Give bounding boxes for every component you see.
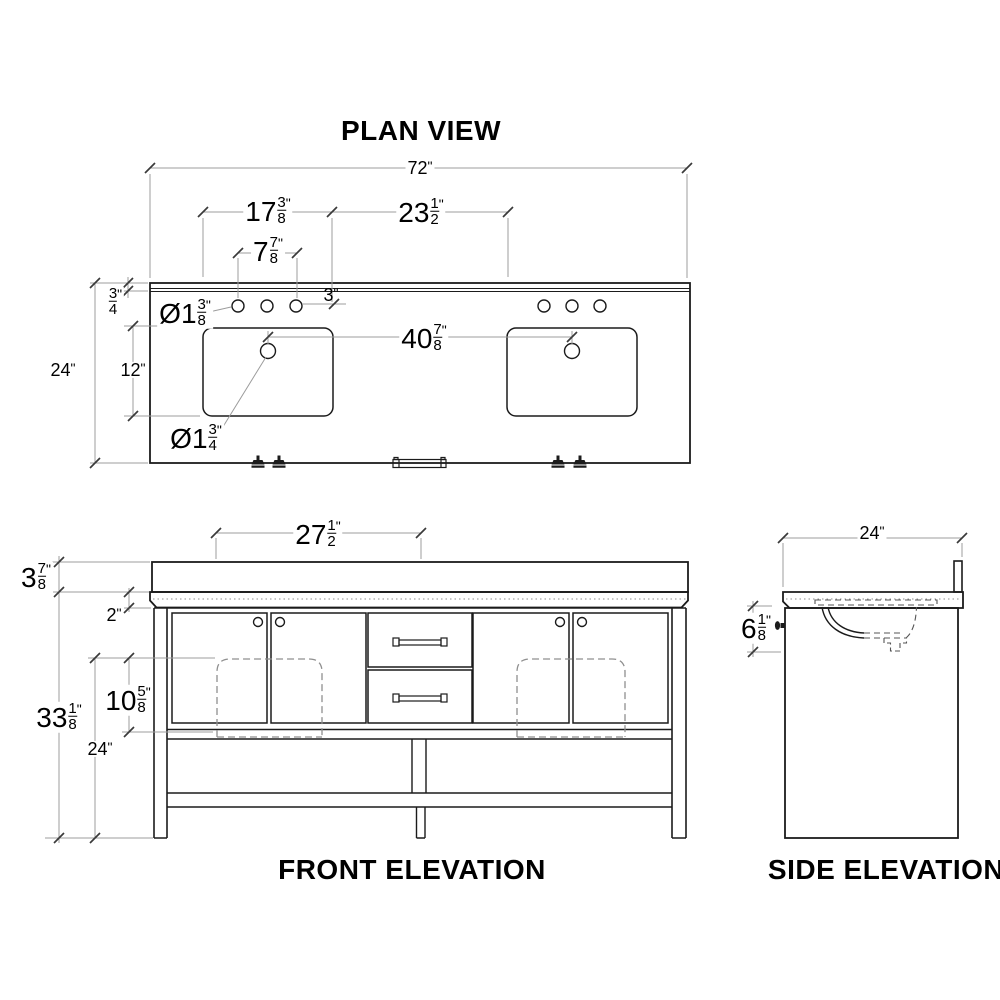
dim-plan-drain-center-spacing: 40 78 " [399,323,448,354]
side-cabinet-panel [785,608,958,838]
side-backsplash [954,561,962,592]
dim-front-door-pair-span: 27 12 " [293,519,342,550]
dim-side-bowl-depth: 6 18 " [739,613,773,644]
dim-plan-drain-diameter: Ø 1 34 " [168,423,224,454]
dim-plan-hole-setback: 3" [322,287,341,303]
side-sink-rim-hidden [815,600,937,605]
dim-plan-sink-depth: 12" [118,362,147,378]
drawing-linework [0,0,1000,1000]
front-doors [172,613,668,723]
side-door-knob [775,621,786,630]
dim-plan-overall-depth: 24" [48,362,77,378]
dim-plan-faucet-hole-diameter: Ø 1 38 " [157,298,213,329]
dim-front-leg-clearance: 24" [85,741,114,757]
plan-door-knobs [252,456,587,468]
dim-front-splash-counter-height: 3 78 " [19,562,53,593]
dim-plan-faucet-spread: 7 78 " [251,236,285,267]
side-sink-bowl [822,607,864,638]
dim-plan-sink-cutout-width: 17 38 " [243,196,292,227]
side-dimension-lines [747,538,962,657]
dim-plan-sink-spacing: 23 12 " [396,197,445,228]
dim-side-depth: 24" [857,525,886,541]
side-drain-hidden [884,638,907,651]
vanity-spec-sheet: PLAN VIEW FRONT ELEVATION SIDE ELEVATION… [0,0,1000,1000]
side-elevation-drawing [775,561,963,838]
front-elevation-drawing [150,562,688,838]
side-sink-bowl-hidden [864,607,917,638]
plan-view-drawing [150,283,690,468]
front-drawers [368,613,472,723]
front-backsplash [152,562,688,592]
plan-view-title: PLAN VIEW [341,115,501,147]
front-rails-and-shelf [167,730,672,839]
plan-countertop [150,283,690,463]
front-counter-slab [150,592,688,608]
dim-front-counter-thickness: 2" [105,607,124,623]
front-door-knobs [254,618,587,627]
dim-plan-back-edge-thickness: 34 " [106,287,124,318]
dim-front-bowl-height: 10 58 " [103,685,152,716]
dim-plan-overall-width: 72" [405,160,434,176]
plan-back-edge-lines [150,289,690,292]
dim-front-cabinet-height: 33 18 " [34,702,83,733]
plan-faucet-holes [232,300,606,312]
side-dimension-ticks [748,533,967,657]
side-elevation-title: SIDE ELEVATION [768,854,1000,886]
front-dimension-lines [45,533,421,843]
front-elevation-title: FRONT ELEVATION [278,854,546,886]
